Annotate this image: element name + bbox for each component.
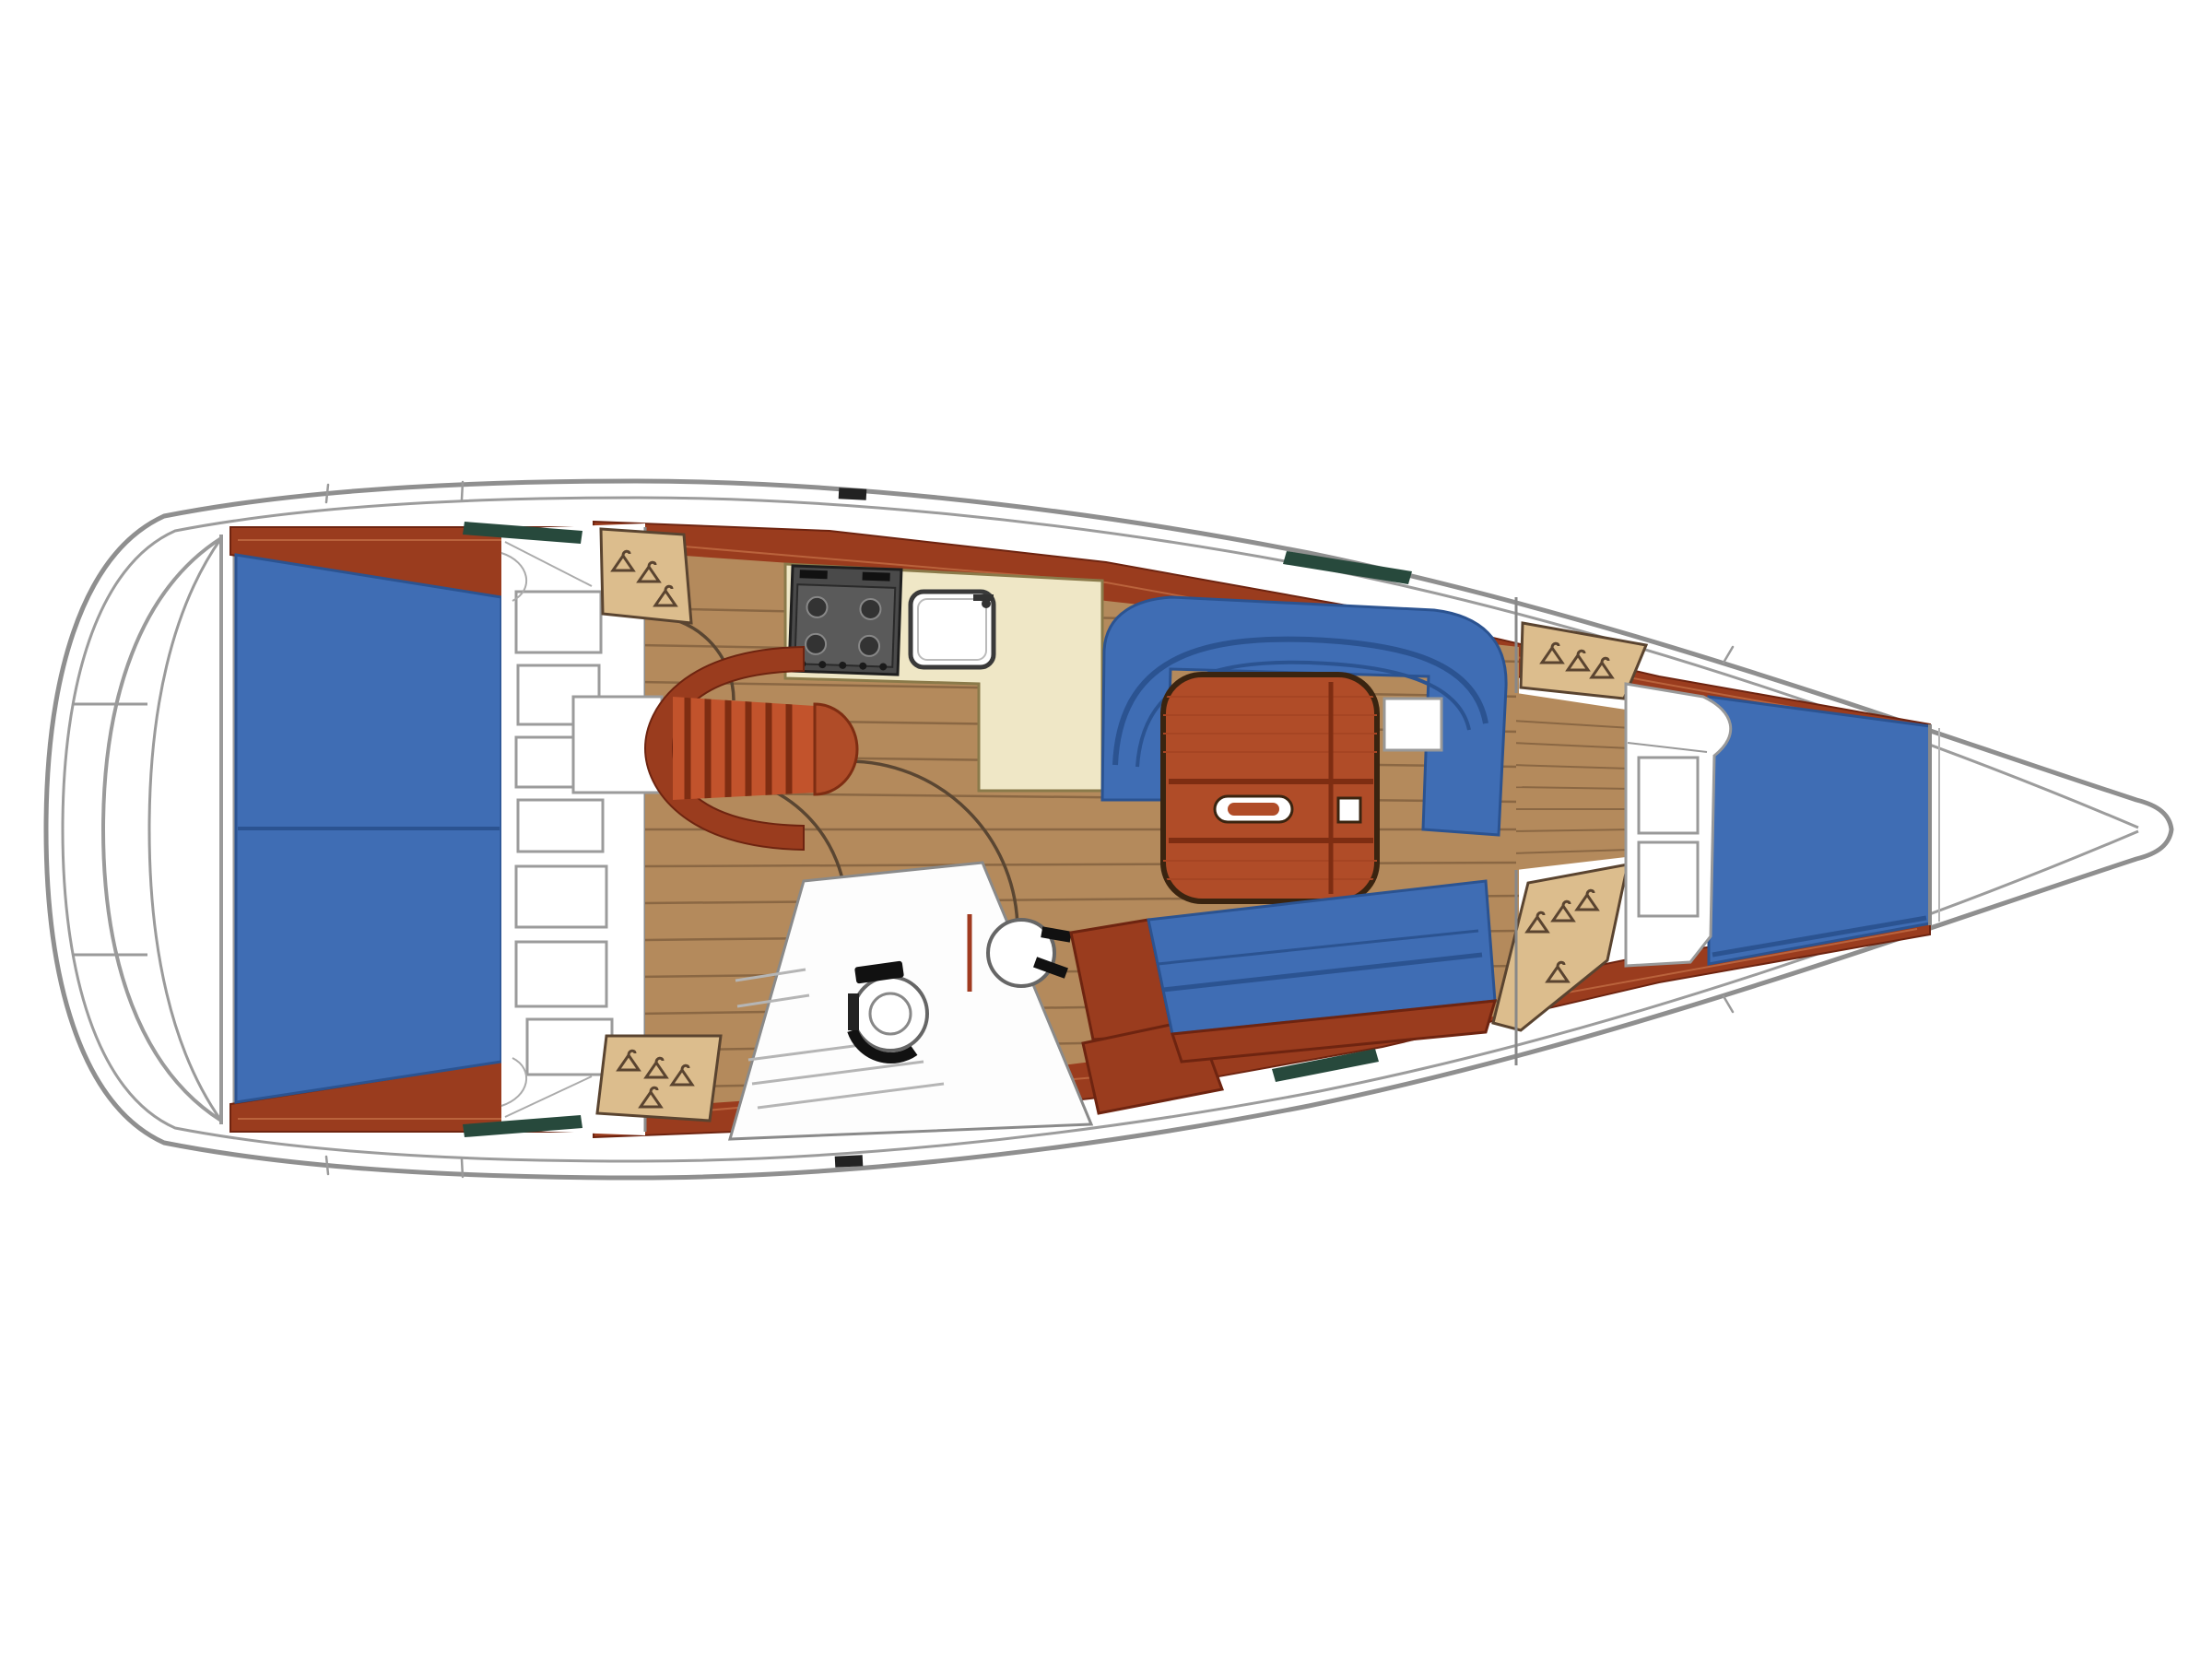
companionway-steps	[673, 697, 815, 800]
settee-step	[1384, 699, 1441, 750]
stove	[789, 566, 901, 675]
wardrobe-port-aft	[601, 529, 691, 623]
floor-plan-canvas	[0, 0, 2212, 1657]
boat-floor-plan	[0, 0, 2212, 1657]
toilet-bowl	[853, 977, 927, 1051]
sink-drain	[982, 599, 991, 608]
deck-cleat	[835, 1155, 864, 1168]
stove-handle	[800, 570, 828, 579]
sink-basin	[911, 592, 994, 667]
deck-cleat	[839, 488, 867, 500]
toilet-pump	[848, 993, 859, 1030]
stove-handle	[863, 572, 890, 582]
galley-sink	[911, 592, 994, 667]
saloon-table	[1163, 675, 1377, 901]
stove-top	[794, 584, 895, 667]
forward-passage-sole	[1516, 693, 1626, 870]
table-handle-inner	[1228, 803, 1279, 816]
table-top	[1163, 675, 1377, 901]
table-latch	[1338, 798, 1360, 822]
aft-double-cabin	[236, 523, 645, 1135]
sink-faucet	[973, 594, 994, 601]
aft-cabin-lockers	[516, 592, 612, 1075]
